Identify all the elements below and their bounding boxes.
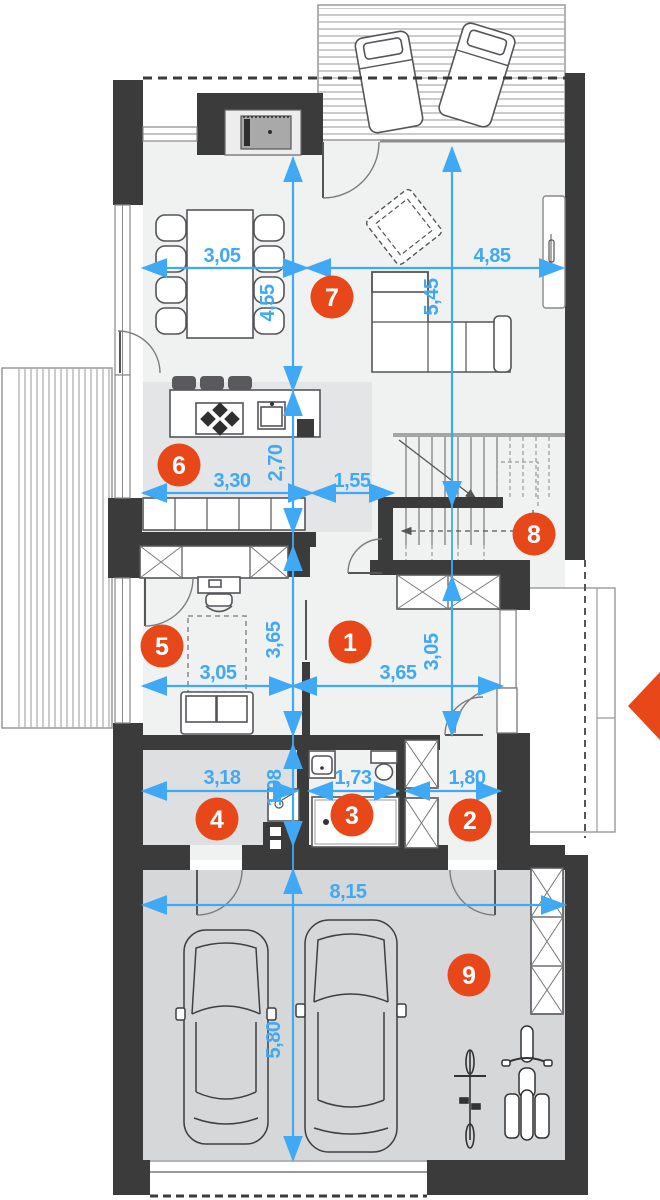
room-badge-5: 5 — [141, 625, 184, 668]
dim-dining-height: 4,55 — [257, 284, 279, 321]
dim-stairs-width: 1,55 — [334, 470, 371, 492]
garage-shelving — [531, 868, 563, 1014]
room-badge-9: 9 — [448, 954, 491, 997]
window-top-dining — [143, 127, 197, 141]
room-badge-4: 4 — [196, 798, 239, 841]
window-left-3 — [115, 578, 130, 723]
bar-stool — [172, 376, 196, 390]
room-badge-7-label: 7 — [325, 284, 339, 312]
room-badge-6: 6 — [158, 444, 201, 487]
terrace-left — [2, 368, 112, 728]
dim-living-width: 4,85 — [474, 245, 511, 267]
room-badge-6-label: 6 — [172, 452, 186, 480]
dim-hall-height: 3,05 — [421, 633, 443, 670]
understairs-wardrobe — [397, 575, 500, 609]
terrace-top — [318, 5, 565, 140]
entrance-porch — [516, 588, 615, 832]
bar-stool — [228, 376, 252, 390]
dim-garage-width: 8,15 — [330, 881, 367, 903]
window-left-1 — [115, 205, 130, 375]
dining-chair — [156, 308, 186, 334]
dining-chair — [156, 215, 186, 241]
floor-plan: 3,05 4,85 3,30 1,55 3,05 3,65 3,18 1,73 … — [0, 0, 660, 1200]
dining-chair — [254, 215, 284, 241]
dining-table — [187, 210, 253, 338]
dim-kitchen-height: 2,70 — [265, 444, 287, 481]
dim-vestibule-width: 1,80 — [449, 767, 486, 789]
dim-garage-height: 5,80 — [263, 1021, 285, 1058]
dim-hall-width: 3,65 — [380, 662, 417, 684]
garage-gate — [150, 1160, 427, 1195]
room-badge-9-label: 9 — [462, 962, 476, 990]
dim-utility-width: 3,18 — [204, 767, 241, 789]
window-right-glass-door — [543, 196, 565, 308]
study-wardrobe — [140, 546, 288, 578]
dining-chair — [156, 277, 186, 303]
room-badge-3: 3 — [331, 794, 374, 837]
room-badge-8-label: 8 — [527, 521, 541, 549]
bar-stool — [200, 376, 224, 390]
dim-study-width: 3,05 — [200, 662, 237, 684]
dim-living-height: 5,45 — [421, 278, 443, 315]
room-badge-2-label: 2 — [463, 807, 477, 835]
dim-bath-width: 1,73 — [335, 767, 372, 789]
room-badge-5-label: 5 — [155, 633, 169, 661]
floor-plan-drawing: 3,05 4,85 3,30 1,55 3,05 3,65 3,18 1,73 … — [0, 0, 660, 1200]
fireplace — [225, 110, 301, 155]
meter-box — [270, 827, 281, 836]
room-badge-8: 8 — [513, 513, 556, 556]
meter-box — [270, 840, 281, 849]
study-sofa — [181, 692, 253, 734]
window-entrance-sidelight — [500, 610, 516, 688]
washbasin — [309, 751, 335, 778]
dim-utility-height: 1,98 — [264, 769, 286, 806]
room-badge-3-label: 3 — [345, 802, 359, 830]
entrance-arrow — [628, 671, 660, 741]
dim-study-height: 3,65 — [263, 621, 285, 658]
dim-dining-width: 3,05 — [204, 245, 241, 267]
room-badge-7: 7 — [311, 276, 354, 319]
room-badge-1-label: 1 — [343, 629, 357, 657]
room-badge-1: 1 — [329, 621, 372, 664]
room-badge-4-label: 4 — [210, 806, 224, 834]
window-left-2 — [115, 375, 130, 498]
kitchen-counter — [143, 498, 305, 530]
room-badge-2: 2 — [449, 799, 492, 842]
dim-kitchen-width: 3,30 — [214, 470, 251, 492]
